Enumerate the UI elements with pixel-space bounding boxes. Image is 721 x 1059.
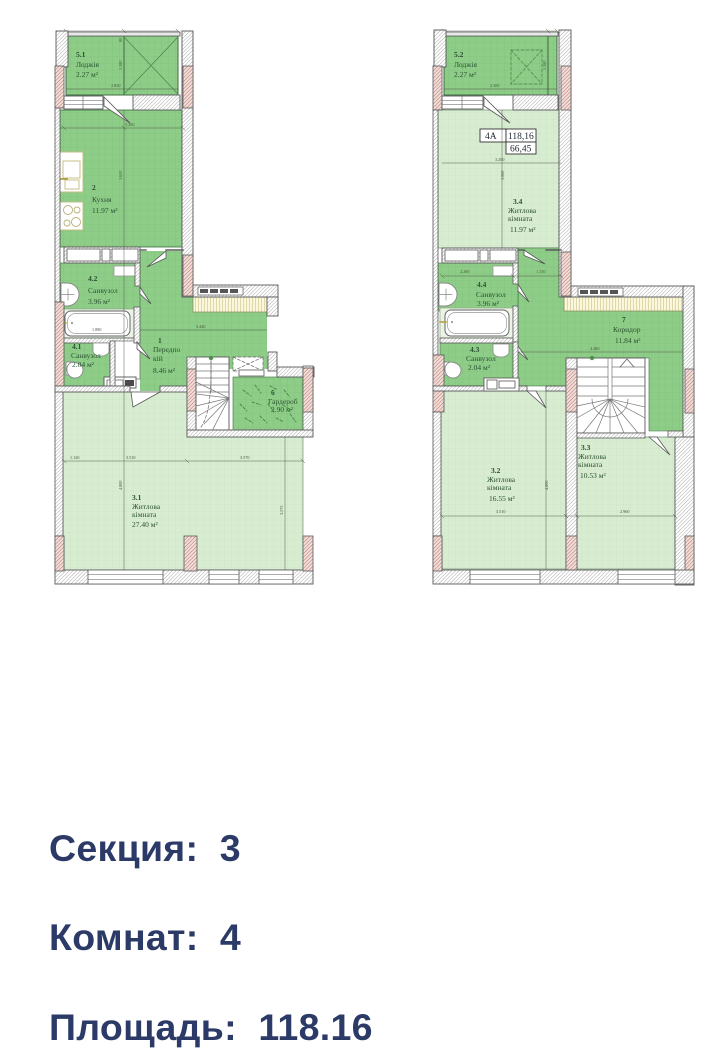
svg-text:7: 7 xyxy=(622,315,626,324)
svg-text:3.060: 3.060 xyxy=(500,171,505,180)
svg-text:1: 1 xyxy=(158,336,162,345)
svg-text:2.200: 2.200 xyxy=(460,269,469,274)
svg-text:2.90 м²: 2.90 м² xyxy=(271,405,294,414)
svg-text:кімната: кімната xyxy=(508,214,533,223)
svg-text:Лоджія: Лоджія xyxy=(454,60,478,69)
svg-text:4.2: 4.2 xyxy=(88,274,98,283)
svg-text:Санвузол: Санвузол xyxy=(466,354,496,363)
svg-text:3.200: 3.200 xyxy=(495,157,504,162)
svg-text:2.830: 2.830 xyxy=(111,83,120,88)
svg-text:1.380: 1.380 xyxy=(542,61,547,70)
svg-text:2.960: 2.960 xyxy=(620,509,629,514)
svg-text:8.46 м²: 8.46 м² xyxy=(153,366,176,375)
svg-text:66,45: 66,45 xyxy=(510,145,532,155)
svg-text:3.2: 3.2 xyxy=(491,466,501,475)
svg-text:кімната: кімната xyxy=(132,510,157,519)
svg-text:3.3: 3.3 xyxy=(581,443,591,452)
svg-text:27.40 м²: 27.40 м² xyxy=(132,520,158,529)
svg-text:1.150: 1.150 xyxy=(536,269,545,274)
svg-text:2.27 м²: 2.27 м² xyxy=(454,70,477,79)
svg-text:11.97 м²: 11.97 м² xyxy=(92,206,118,215)
svg-text:16.55 м²: 16.55 м² xyxy=(489,494,515,503)
svg-text:2: 2 xyxy=(92,183,96,192)
svg-text:Секция: 3: Секция: 3 xyxy=(49,827,241,869)
svg-text:10.53 м²: 10.53 м² xyxy=(580,471,606,480)
svg-text:5.1: 5.1 xyxy=(76,50,86,59)
svg-text:1.380: 1.380 xyxy=(118,61,123,70)
svg-text:2.04 м²: 2.04 м² xyxy=(72,360,95,369)
svg-text:4.1: 4.1 xyxy=(72,342,82,351)
svg-text:2.27 м²: 2.27 м² xyxy=(76,70,99,79)
svg-text:4.480: 4.480 xyxy=(590,346,599,351)
svg-text:3.280: 3.280 xyxy=(125,122,134,127)
svg-text:4.800: 4.800 xyxy=(118,481,123,490)
svg-text:3.4: 3.4 xyxy=(513,197,523,206)
svg-text:Санвузол: Санвузол xyxy=(71,351,101,360)
svg-text:1.120: 1.120 xyxy=(70,455,79,460)
svg-text:5.2: 5.2 xyxy=(454,50,464,59)
svg-text:6: 6 xyxy=(271,388,275,397)
svg-text:3.575: 3.575 xyxy=(279,506,284,515)
svg-text:3.96 м²: 3.96 м² xyxy=(477,299,500,308)
svg-text:2.300: 2.300 xyxy=(490,83,499,88)
svg-text:3.440: 3.440 xyxy=(196,324,205,329)
svg-text:Передпо: Передпо xyxy=(153,345,181,354)
svg-text:кій: кій xyxy=(153,354,163,363)
svg-text:4.3: 4.3 xyxy=(470,345,480,354)
svg-text:3.650: 3.650 xyxy=(118,171,123,180)
svg-text:Коридор: Коридор xyxy=(613,325,641,334)
svg-text:Кухня: Кухня xyxy=(92,195,112,204)
svg-text:3.1: 3.1 xyxy=(132,493,142,502)
svg-text:1.880: 1.880 xyxy=(92,327,101,332)
svg-text:3.510: 3.510 xyxy=(496,509,505,514)
svg-text:80: 80 xyxy=(118,38,123,42)
svg-text:кімната: кімната xyxy=(578,460,603,469)
svg-text:3.510: 3.510 xyxy=(126,455,135,460)
svg-text:118,16: 118,16 xyxy=(508,132,534,142)
svg-text:4.800: 4.800 xyxy=(544,481,549,490)
svg-text:11.84 м²: 11.84 м² xyxy=(615,336,641,345)
svg-text:Санвузол: Санвузол xyxy=(88,286,118,295)
svg-text:Санвузол: Санвузол xyxy=(476,290,506,299)
svg-text:кімната: кімната xyxy=(487,483,512,492)
svg-text:4А: 4А xyxy=(485,132,497,142)
svg-text:Площадь: 118.16: Площадь: 118.16 xyxy=(49,1006,373,1048)
svg-text:4.4: 4.4 xyxy=(477,280,487,289)
svg-text:Лоджія: Лоджія xyxy=(76,60,100,69)
svg-text:Комнат: 4: Комнат: 4 xyxy=(49,916,241,958)
svg-text:2.04 м²: 2.04 м² xyxy=(468,363,491,372)
svg-text:3.96 м²: 3.96 м² xyxy=(88,297,111,306)
svg-text:11.97 м²: 11.97 м² xyxy=(510,225,536,234)
svg-text:3.570: 3.570 xyxy=(240,455,249,460)
